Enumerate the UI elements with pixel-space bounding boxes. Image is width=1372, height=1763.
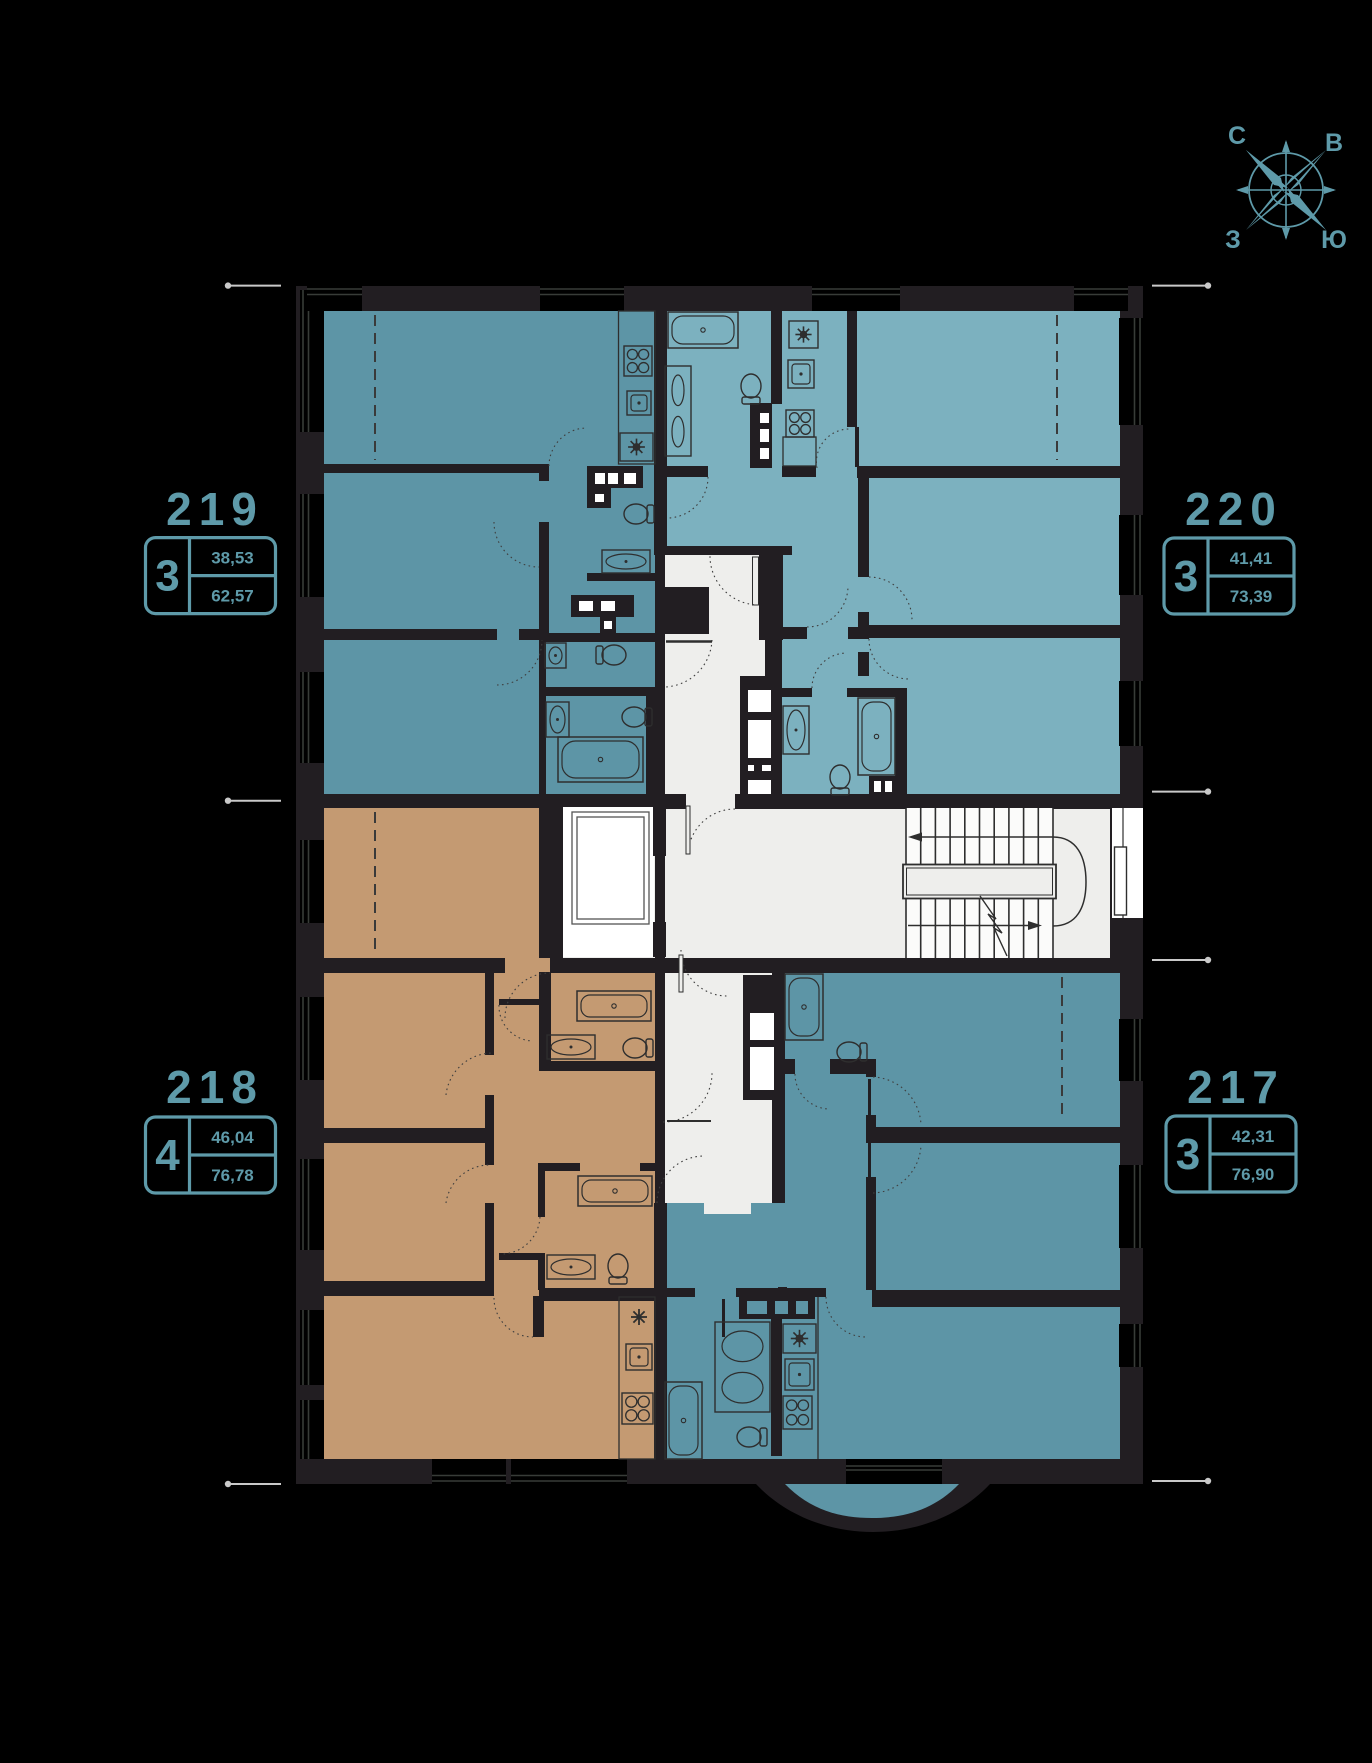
svg-text:42,31: 42,31 <box>1232 1127 1275 1146</box>
svg-text:220: 220 <box>1185 483 1283 535</box>
svg-text:76,78: 76,78 <box>211 1166 254 1185</box>
svg-text:З: З <box>1225 226 1241 254</box>
svg-text:Ю: Ю <box>1321 226 1347 254</box>
svg-text:С: С <box>1228 122 1246 150</box>
svg-text:38,53: 38,53 <box>211 549 254 568</box>
svg-text:73,39: 73,39 <box>1230 587 1273 606</box>
svg-text:3: 3 <box>1176 1130 1200 1179</box>
svg-text:62,57: 62,57 <box>211 587 254 606</box>
svg-text:В: В <box>1325 129 1343 157</box>
svg-text:218: 218 <box>166 1061 264 1113</box>
svg-text:41,41: 41,41 <box>1230 549 1273 568</box>
svg-text:3: 3 <box>155 552 179 601</box>
svg-text:217: 217 <box>1187 1061 1285 1113</box>
svg-text:3: 3 <box>1174 552 1198 601</box>
svg-text:46,04: 46,04 <box>211 1128 254 1147</box>
svg-text:4: 4 <box>155 1131 180 1180</box>
svg-text:219: 219 <box>166 483 264 535</box>
svg-text:76,90: 76,90 <box>1232 1165 1275 1184</box>
